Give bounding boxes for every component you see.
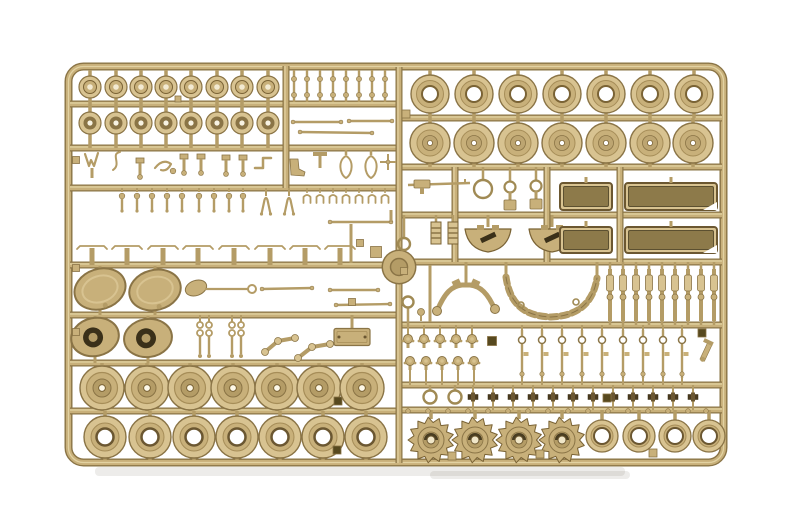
gate-tab [333,446,341,454]
large-ring-wheel [455,70,493,118]
wishbone-fork [283,188,295,216]
stowage-tub [560,221,612,253]
ring-wheel [173,411,215,460]
large-hub-wheel [542,118,582,167]
suspension-links [519,325,689,385]
large-hub-wheel [410,118,450,167]
tow-loop [365,150,376,178]
large-ring-wheel [675,70,713,118]
boot-bracket [290,159,305,176]
gate-tab [402,110,410,118]
gate-tab [649,449,657,457]
road-wheel [125,363,169,411]
gate-tab [488,337,497,346]
idler-ring-wheel [659,410,691,452]
cap-wheel [180,70,202,104]
linkage-rod [260,286,314,291]
eyelet [403,297,414,326]
hub-wheel [180,104,202,148]
model-kit-sprue-photo [0,0,800,530]
road-wheel [80,363,124,411]
thin-rod [298,130,374,135]
hub-wheel [155,104,177,148]
large-ring-wheel [587,70,625,118]
hub-wheel [231,104,253,148]
large-hub-wheel [454,118,494,167]
hub-wheel [130,104,152,148]
gate-tab [603,394,611,402]
sprue-scene [0,0,800,530]
hub-wheel [79,104,101,148]
hub-wheel [206,104,228,148]
ring-wheel [216,411,258,460]
gate-tab [357,240,364,247]
ring-wheel [129,411,171,460]
large-ring-wheel [631,70,669,118]
s-hook [113,152,120,170]
large-ring-wheel [411,70,449,118]
small-knob [418,309,425,322]
grille-ladder [431,215,441,244]
ring-sight [474,167,492,198]
stowage-tub-long [625,221,717,253]
square-head-post [136,158,144,180]
pin-comb [291,70,387,102]
t-bracket [313,152,327,168]
sprocket-wheel [539,410,584,463]
hub-pod [122,316,175,363]
large-hub-wheel [673,118,713,167]
ring-wheel [84,411,126,460]
ring-wheel [259,411,301,460]
link-pair [229,315,244,358]
track-run [505,262,599,317]
sprocket-wheel [408,410,453,463]
idler-ring-wheel [623,410,655,452]
sprocket-wheel [496,410,541,463]
cross-part [380,154,396,170]
gate-tab [175,96,181,102]
hanging-pins [119,188,246,213]
v-bracket [85,153,98,178]
idler-wishbone [433,262,500,316]
shovel [183,277,256,299]
eyelet-post [530,167,542,209]
gate-tab [536,450,544,458]
large-hub-wheel [586,118,626,167]
gate-tab [448,452,456,460]
gate-tab [401,268,408,275]
final-drive-pod [125,264,185,315]
square-head-post [239,155,247,177]
half-moon-mount [465,215,511,252]
gate-tab [349,299,356,306]
rail-tab [73,265,80,272]
bolt-heads [404,357,481,386]
cover-plate [334,315,370,346]
hub-wheel [257,104,279,148]
machine-gun [408,179,470,194]
cap-wheel [105,70,127,104]
linkage-rod [334,302,392,307]
cap-wheel [206,70,228,104]
large-hub-wheel [498,118,538,167]
stowage-tub [560,177,612,210]
crank-arm [295,341,334,362]
idler-ring-wheel [586,410,618,452]
thin-rod [291,120,343,124]
vertical-rod [429,265,432,322]
vertical-rod [390,210,393,222]
rail-tab [73,329,80,336]
tow-loop [340,150,351,178]
square-head-post [222,155,230,177]
cap-wheel [155,70,177,104]
hub-pod [68,313,123,363]
shock-absorbers [607,262,718,325]
cap-wheel [257,70,279,104]
thin-rod [328,220,393,224]
cap-wheel [130,70,152,104]
linkage-rod [328,288,380,292]
wishbone-fork [260,188,272,216]
photo-shadow [95,467,630,479]
road-wheel [340,363,384,411]
hub-wheel [105,104,127,148]
sprocket-wheel [452,410,497,463]
small-pistol-part [695,338,714,363]
rail-tab [73,157,80,164]
link-pair [197,315,212,358]
eyelet-post [504,167,516,210]
thin-rod [347,119,394,123]
large-ring-wheel [543,70,581,118]
square-head-post [180,154,188,176]
crank-arm [262,335,299,356]
large-ring-wheel [499,70,537,118]
gate-tab [371,247,382,258]
cap-wheel [79,70,101,104]
angle-bracket [255,158,271,168]
gate-tab [698,329,706,337]
road-wheel [211,363,255,411]
vertical-rod [350,224,353,263]
claw-hook [155,162,176,174]
stowage-tub-long [625,177,717,210]
sprue-center-boss [382,250,417,285]
road-wheel [255,363,299,411]
track-cleats [468,385,698,410]
cap-wheel [231,70,253,104]
square-head-post [197,154,205,176]
gate-tab [334,397,342,405]
road-wheel [168,363,212,411]
large-hub-wheel [630,118,670,167]
ring-wheel [345,411,387,460]
